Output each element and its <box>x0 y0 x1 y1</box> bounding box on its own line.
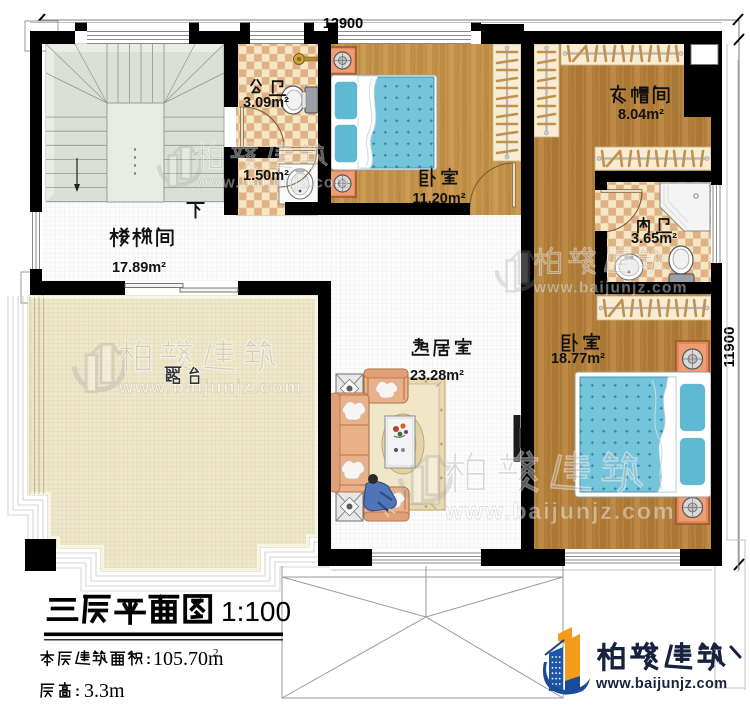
svg-text:8.04m²: 8.04m² <box>618 107 664 123</box>
svg-text:12900: 12900 <box>323 16 363 32</box>
svg-text:23.28m²: 23.28m² <box>410 368 464 384</box>
svg-text::: : <box>75 683 80 700</box>
svg-text:www.baijunjz.com: www.baijunjz.com <box>118 376 303 397</box>
svg-text:17.89m²: 17.89m² <box>112 260 166 276</box>
svg-text:11.20m²: 11.20m² <box>412 191 465 207</box>
svg-text:2: 2 <box>213 647 219 659</box>
svg-text:www.baijunjz.com: www.baijunjz.com <box>533 279 688 296</box>
svg-text:1.50m²: 1.50m² <box>243 168 289 184</box>
svg-text::: : <box>146 651 151 668</box>
svg-text:3.65m²: 3.65m² <box>631 231 677 247</box>
svg-text:3.3m: 3.3m <box>84 680 125 702</box>
svg-text:18.77m²: 18.77m² <box>551 351 605 367</box>
svg-text:www.baijunjz.com: www.baijunjz.com <box>595 676 728 692</box>
svg-text:www.baijunjz.com: www.baijunjz.com <box>444 498 676 524</box>
svg-text:1:100: 1:100 <box>221 596 291 627</box>
svg-text:3.09m²: 3.09m² <box>243 95 289 111</box>
svg-text:11900: 11900 <box>721 327 738 368</box>
